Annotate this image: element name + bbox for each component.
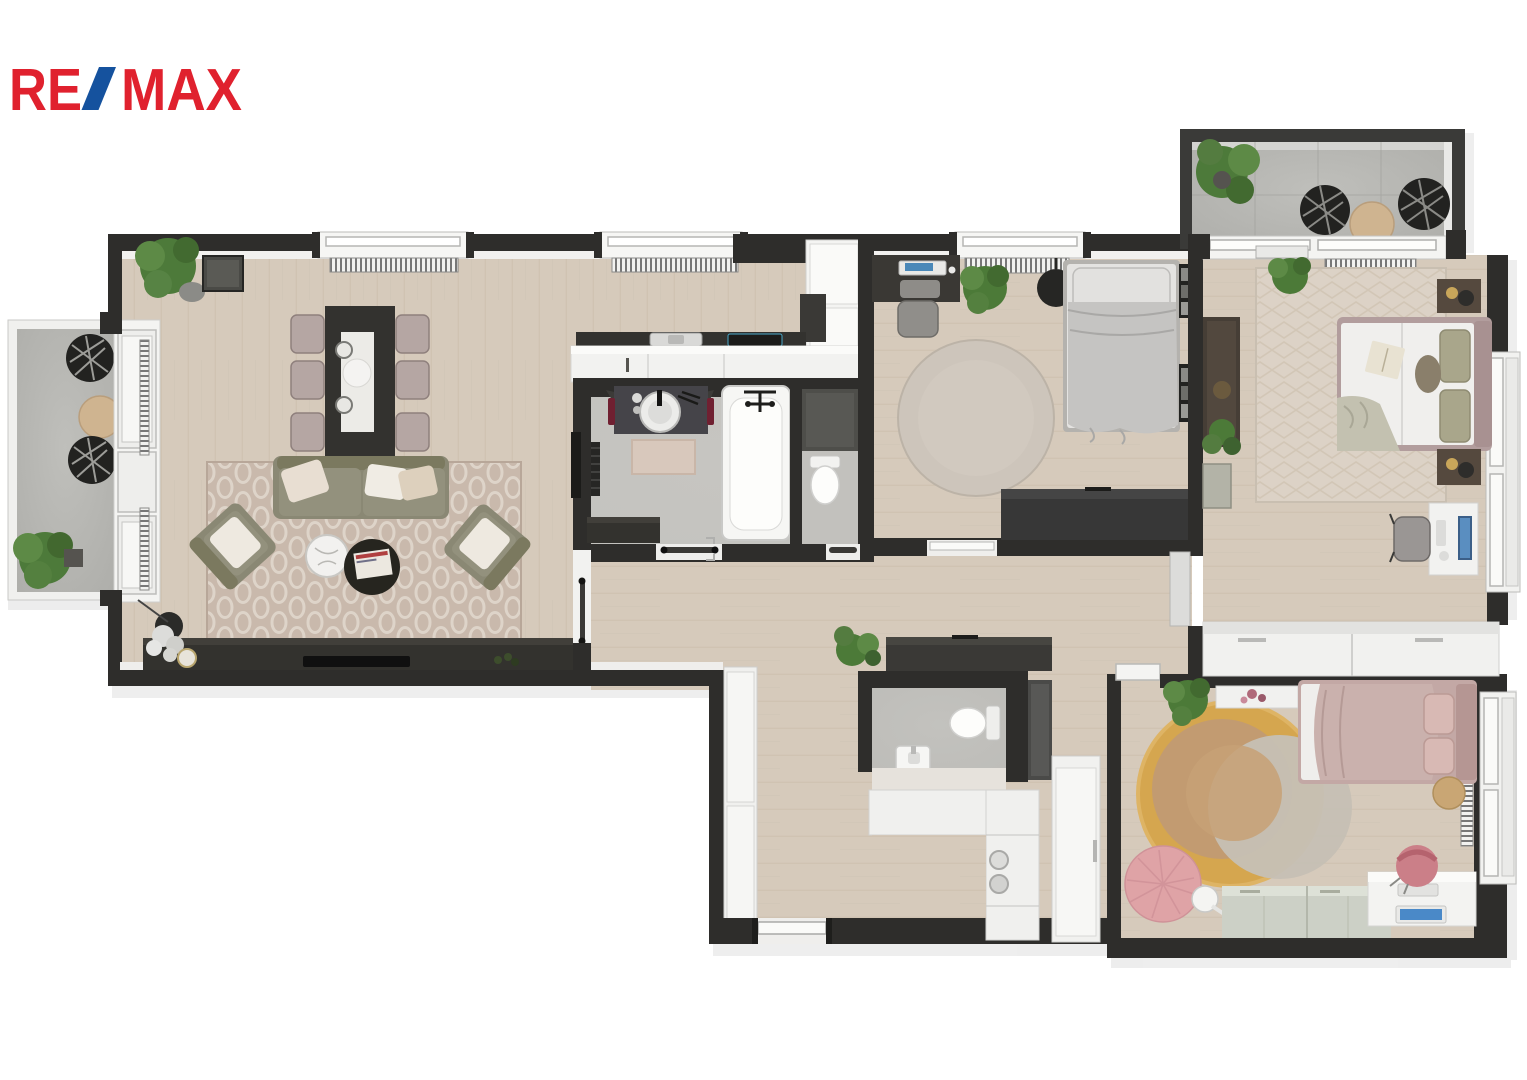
svg-text:MAX: MAX	[121, 57, 242, 123]
svg-text:RE: RE	[9, 57, 82, 123]
